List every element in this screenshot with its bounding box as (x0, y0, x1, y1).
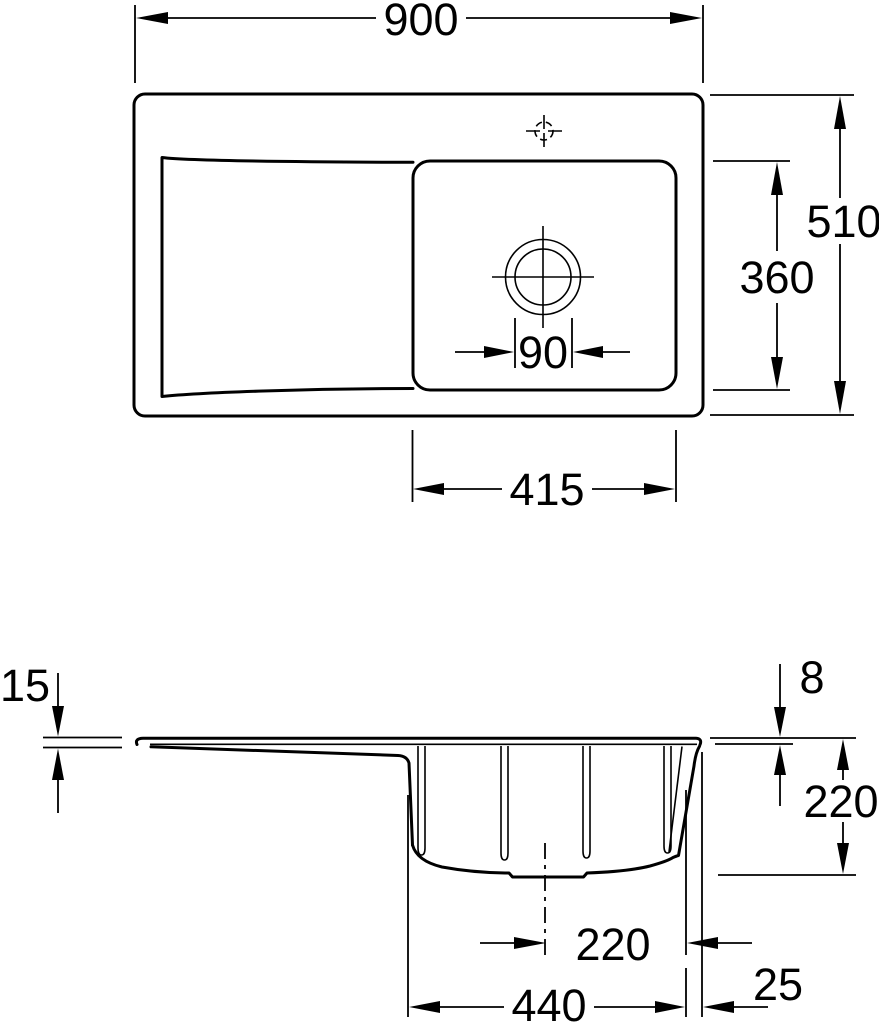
dim-rim-overhang-label: 25 (753, 959, 803, 1010)
dim-bowl-inner-depth-label: 220 (803, 776, 878, 827)
drainboard (162, 158, 413, 397)
dim-bowl-offset-label: 415 (509, 464, 584, 515)
sink-technical-drawing: 900 510 360 90 (0, 0, 879, 1024)
dim-bowl-inner-depth: 220 (718, 739, 879, 875)
bowl-contour-ribs (418, 746, 671, 860)
dim-bowl-depth-label: 360 (739, 252, 814, 303)
drawing-page: 900 510 360 90 (0, 0, 879, 1024)
dim-rim-front-height: 15 (0, 660, 122, 813)
dim-bowl-depth: 360 (713, 161, 815, 390)
drain-icon (492, 226, 594, 328)
dim-drain-center-offset: 220 (480, 919, 752, 970)
dim-bowl-width: 440 (409, 980, 685, 1024)
dim-rim-back-height-label: 8 (799, 652, 824, 703)
bottom-extension-lines (408, 752, 702, 1017)
faucet-hole-icon (526, 115, 562, 147)
bowl-profile (413, 746, 700, 877)
drainboard-profile (151, 747, 413, 845)
dim-overall-width: 900 (135, 0, 703, 83)
dim-bowl-offset: 415 (413, 430, 677, 515)
dim-rim-overhang: 25 (703, 959, 803, 1013)
side-view: 15 8 220 220 (0, 652, 879, 1024)
dim-drain-diameter: 90 (455, 318, 630, 378)
dim-bowl-width-label: 440 (511, 980, 586, 1024)
top-view: 900 510 360 90 (134, 0, 879, 515)
dim-drain-center-offset-label: 220 (575, 919, 650, 970)
dim-overall-depth-label: 510 (806, 196, 879, 247)
dim-drain-diameter-label: 90 (518, 327, 568, 378)
dim-rim-front-height-label: 15 (0, 660, 50, 711)
sink-outline (134, 94, 703, 416)
dim-overall-width-label: 900 (383, 0, 458, 45)
